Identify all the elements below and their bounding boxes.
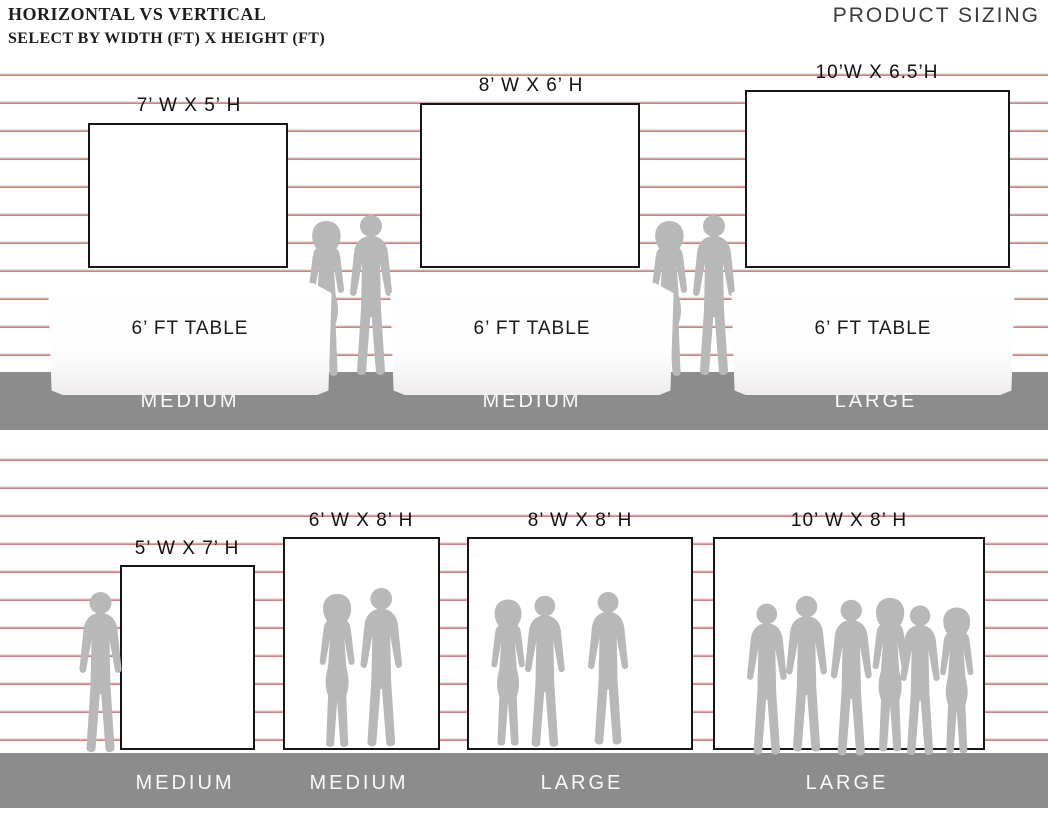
size-label-8x8: 8’ W X 8’ H xyxy=(528,510,633,532)
table-3: 6’ FT TABLE xyxy=(730,283,1016,395)
size-label-8x6: 8’ W X 6’ H xyxy=(479,75,584,97)
size-label-6x8: 6’ W X 8’ H xyxy=(309,510,414,532)
size-label-10x8: 10’ W X 8’ H xyxy=(791,510,907,532)
backdrop-5x7 xyxy=(120,565,255,750)
brand-title: PRODUCT SIZING xyxy=(833,4,1040,28)
size-label-10x65: 10’W X 6.5’H xyxy=(816,62,939,84)
people-silhouette-single-man xyxy=(60,590,134,760)
people-silhouette-group xyxy=(738,592,982,765)
table-2-label: 6’ FT TABLE xyxy=(474,318,591,340)
floor-label-bottom-1: MEDIUM xyxy=(135,772,234,795)
product-sizing-diagram: HORIZONTAL VS VERTICAL SELECT BY WIDTH (… xyxy=(0,0,1048,815)
floor-label-top-3: LARGE xyxy=(835,390,918,413)
floor-label-top-2: MEDIUM xyxy=(482,390,581,413)
backdrop-10x65 xyxy=(745,90,1010,268)
floor-label-bottom-3: LARGE xyxy=(541,772,624,795)
floor-label-top-1: MEDIUM xyxy=(140,390,239,413)
table-1-label: 6’ FT TABLE xyxy=(132,318,249,340)
size-label-5x7: 5’ W X 7’ H xyxy=(135,538,240,560)
table-3-label: 6’ FT TABLE xyxy=(815,318,932,340)
size-label-7x5: 7’ W X 5’ H xyxy=(137,95,242,117)
table-1: 6’ FT TABLE xyxy=(47,283,333,395)
title-line-1: HORIZONTAL VS VERTICAL xyxy=(8,4,325,25)
header: HORIZONTAL VS VERTICAL SELECT BY WIDTH (… xyxy=(8,4,325,48)
people-silhouette-couple-3 xyxy=(308,586,411,756)
table-2: 6’ FT TABLE xyxy=(389,283,675,395)
people-silhouette-trio xyxy=(480,590,637,754)
floor-label-bottom-4: LARGE xyxy=(806,772,889,795)
title-line-2: SELECT BY WIDTH (FT) X HEIGHT (FT) xyxy=(8,30,325,48)
backdrop-8x6 xyxy=(420,103,640,268)
floor-label-bottom-2: MEDIUM xyxy=(309,772,408,795)
backdrop-7x5 xyxy=(88,123,288,268)
